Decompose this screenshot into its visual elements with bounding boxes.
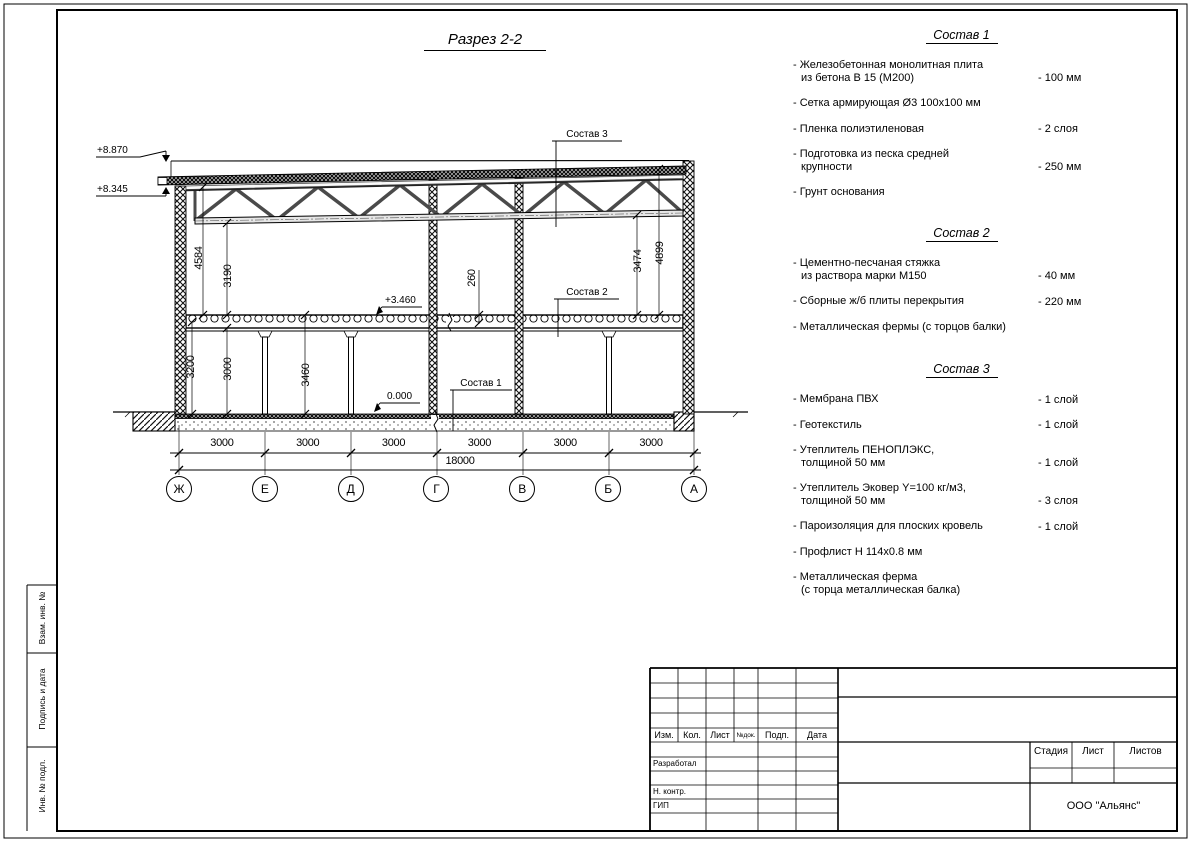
callout-sostav-3: Состав 3 (554, 129, 620, 140)
margin-strip-podpis: Подпись и дата (37, 652, 47, 746)
composition-item: - Пароизоляция для плоских кровель - 1 с… (793, 520, 1130, 533)
titleblock-sheets: Листов (1114, 746, 1177, 757)
span-dimension: 3000 (179, 437, 265, 449)
section-title: Разрез 2-2 (424, 31, 546, 51)
composition-item: - Металлическая ферма (с торца металличе… (793, 571, 1130, 596)
composition-item: - Пленка полиэтиленовая - 2 слоя (793, 123, 1130, 136)
axis-bubble: Ж (166, 476, 192, 502)
composition-item: - Утеплитель Эковер Y=100 кг/м3, толщино… (793, 482, 1130, 507)
composition-item: - Грунт основания (793, 186, 1130, 199)
titleblock-col-data: Дата (796, 730, 838, 740)
composition-item: - Профлист Н 114х0.8 мм (793, 546, 1130, 559)
titleblock-col-ndok: №док. (734, 732, 758, 739)
axis-bubble: Б (595, 476, 621, 502)
dim-left-outer: 4584 (193, 226, 205, 290)
level-floor1: 0.000 (387, 391, 412, 402)
composition-list-2: Состав 2 - Цементно-песчаная стяжка из р… (793, 226, 1130, 346)
composition-title-1: Состав 1 (926, 28, 998, 44)
composition-item-value: - 100 мм (1038, 72, 1130, 84)
composition-item: - Геотекстиль - 1 слой (793, 419, 1130, 432)
composition-item-value: - 1 слой (1038, 419, 1130, 431)
dim-floor1-b: 3000 (222, 337, 234, 401)
composition-item: - Сборные ж/б плиты перекрытия - 220 мм (793, 295, 1130, 308)
dim-right-inner: 3474 (632, 229, 644, 293)
titleblock-role-developer: Разработал (653, 759, 697, 768)
composition-item-value: - 220 мм (1038, 296, 1130, 308)
composition-item-value: - 1 слой (1038, 521, 1130, 533)
level-marks (96, 151, 422, 412)
level-roof: +8.345 (97, 184, 128, 195)
titleblock-col-podp: Подп. (758, 730, 796, 740)
composition-item-text: - Профлист Н 114х0.8 мм (793, 546, 1038, 559)
axis-bubble: В (509, 476, 535, 502)
axis-bubble: Е (252, 476, 278, 502)
span-dimension: 3000 (351, 437, 437, 449)
axis-bubble: Г (423, 476, 449, 502)
bottom-dimensions (170, 425, 701, 475)
axis-bubble: А (681, 476, 707, 502)
titleblock-col-kol: Кол. (678, 730, 706, 740)
composition-item-text: - Геотекстиль (793, 419, 1038, 432)
composition-item-value: - 2 слоя (1038, 123, 1130, 135)
composition-title-2: Состав 2 (926, 226, 998, 242)
composition-item-text: - Пленка полиэтиленовая (793, 123, 1038, 136)
composition-title-3: Состав 3 (926, 362, 998, 378)
titleblock-role-gip: ГИП (653, 801, 669, 810)
titleblock-role-ncontrol: Н. контр. (653, 787, 686, 796)
drawing-sheet: Разрез 2-2 +8.870 +8.345 +3.460 0.000 Со… (0, 0, 1191, 842)
callout-sostav-1: Состав 1 (450, 378, 512, 389)
composition-list-1: Состав 1 - Железобетонная монолитная пли… (793, 28, 1130, 212)
composition-item-text: - Сборные ж/б плиты перекрытия (793, 295, 1038, 308)
composition-item-text: - Утеплитель ПЕНОПЛЭКС, толщиной 50 мм (793, 444, 1038, 469)
composition-item-value: - 250 мм (1038, 161, 1130, 173)
composition-items-3: - Мембрана ПВХ - 1 слой - Геотекстиль - … (793, 393, 1130, 596)
axis-bubble: Д (338, 476, 364, 502)
composition-item-text: - Мембрана ПВХ (793, 393, 1038, 406)
composition-items-1: - Железобетонная монолитная плита из бет… (793, 59, 1130, 199)
composition-item-value: - 1 слой (1038, 457, 1130, 469)
span-dimension: 3000 (608, 437, 694, 449)
composition-item: - Подготовка из песка средней крупности … (793, 148, 1130, 173)
composition-item: - Мембрана ПВХ - 1 слой (793, 393, 1130, 406)
span-dimension: 3000 (265, 437, 351, 449)
composition-item-text: - Подготовка из песка средней крупности (793, 148, 1038, 173)
dim-floor1-a: 3200 (185, 335, 197, 399)
composition-list-3: Состав 3 - Мембрана ПВХ - 1 слой - Геоте… (793, 362, 1130, 609)
level-floor2: +3.460 (385, 295, 416, 306)
titleblock-company: ООО "Альянс" (1030, 800, 1177, 812)
composition-item-text: - Пароизоляция для плоских кровель (793, 520, 1038, 533)
margin-strip-inv: Инв. № подл. (37, 746, 47, 826)
composition-item-value: - 40 мм (1038, 270, 1130, 282)
composition-item: - Цементно-песчаная стяжка из раствора м… (793, 257, 1130, 282)
composition-item-text: - Металлическая фермы (с торцов балки) (793, 321, 1038, 334)
span-dimension: 3000 (522, 437, 608, 449)
composition-items-2: - Цементно-песчаная стяжка из раствора м… (793, 257, 1130, 333)
floor-slab (113, 412, 748, 431)
dim-right-outer: 4899 (654, 221, 666, 285)
composition-item: - Утеплитель ПЕНОПЛЭКС, толщиной 50 мм -… (793, 444, 1130, 469)
titleblock-col-izm: Изм. (650, 730, 678, 740)
titleblock-col-list: Лист (706, 730, 734, 740)
axis-bubbles-row: ЖЕДГВБА (166, 476, 707, 502)
dim-slab: 260 (466, 246, 478, 310)
margin-strip-vzam: Взам. инв. № (37, 584, 47, 652)
dim-left-inner: 3190 (222, 244, 234, 308)
span-dimension: 3000 (436, 437, 522, 449)
composition-item-text: - Металлическая ферма (с торца металличе… (793, 571, 1038, 596)
composition-item: - Металлическая фермы (с торцов балки) (793, 321, 1130, 334)
level-parapet: +8.870 (97, 145, 128, 156)
composition-item: - Сетка армирующая Ø3 100х100 мм (793, 97, 1130, 110)
composition-item-text: - Утеплитель Эковер Y=100 кг/м3, толщино… (793, 482, 1038, 507)
titleblock-sheet: Лист (1072, 746, 1114, 757)
dim-floor1-mid: 3460 (300, 343, 312, 407)
composition-item-text: - Железобетонная монолитная плита из бет… (793, 59, 1038, 84)
titleblock-stage: Стадия (1030, 746, 1072, 757)
callout-sostav-2: Состав 2 (555, 287, 619, 298)
composition-item-value: - 3 слоя (1038, 495, 1130, 507)
composition-item-value: - 1 слой (1038, 394, 1130, 406)
composition-item-text: - Грунт основания (793, 186, 1038, 199)
dim-total: 18000 (430, 455, 490, 467)
composition-item: - Железобетонная монолитная плита из бет… (793, 59, 1130, 84)
composition-item-text: - Цементно-песчаная стяжка из раствора м… (793, 257, 1038, 282)
span-dimensions-row: 300030003000300030003000 (179, 437, 694, 449)
composition-item-text: - Сетка армирующая Ø3 100х100 мм (793, 97, 1038, 110)
